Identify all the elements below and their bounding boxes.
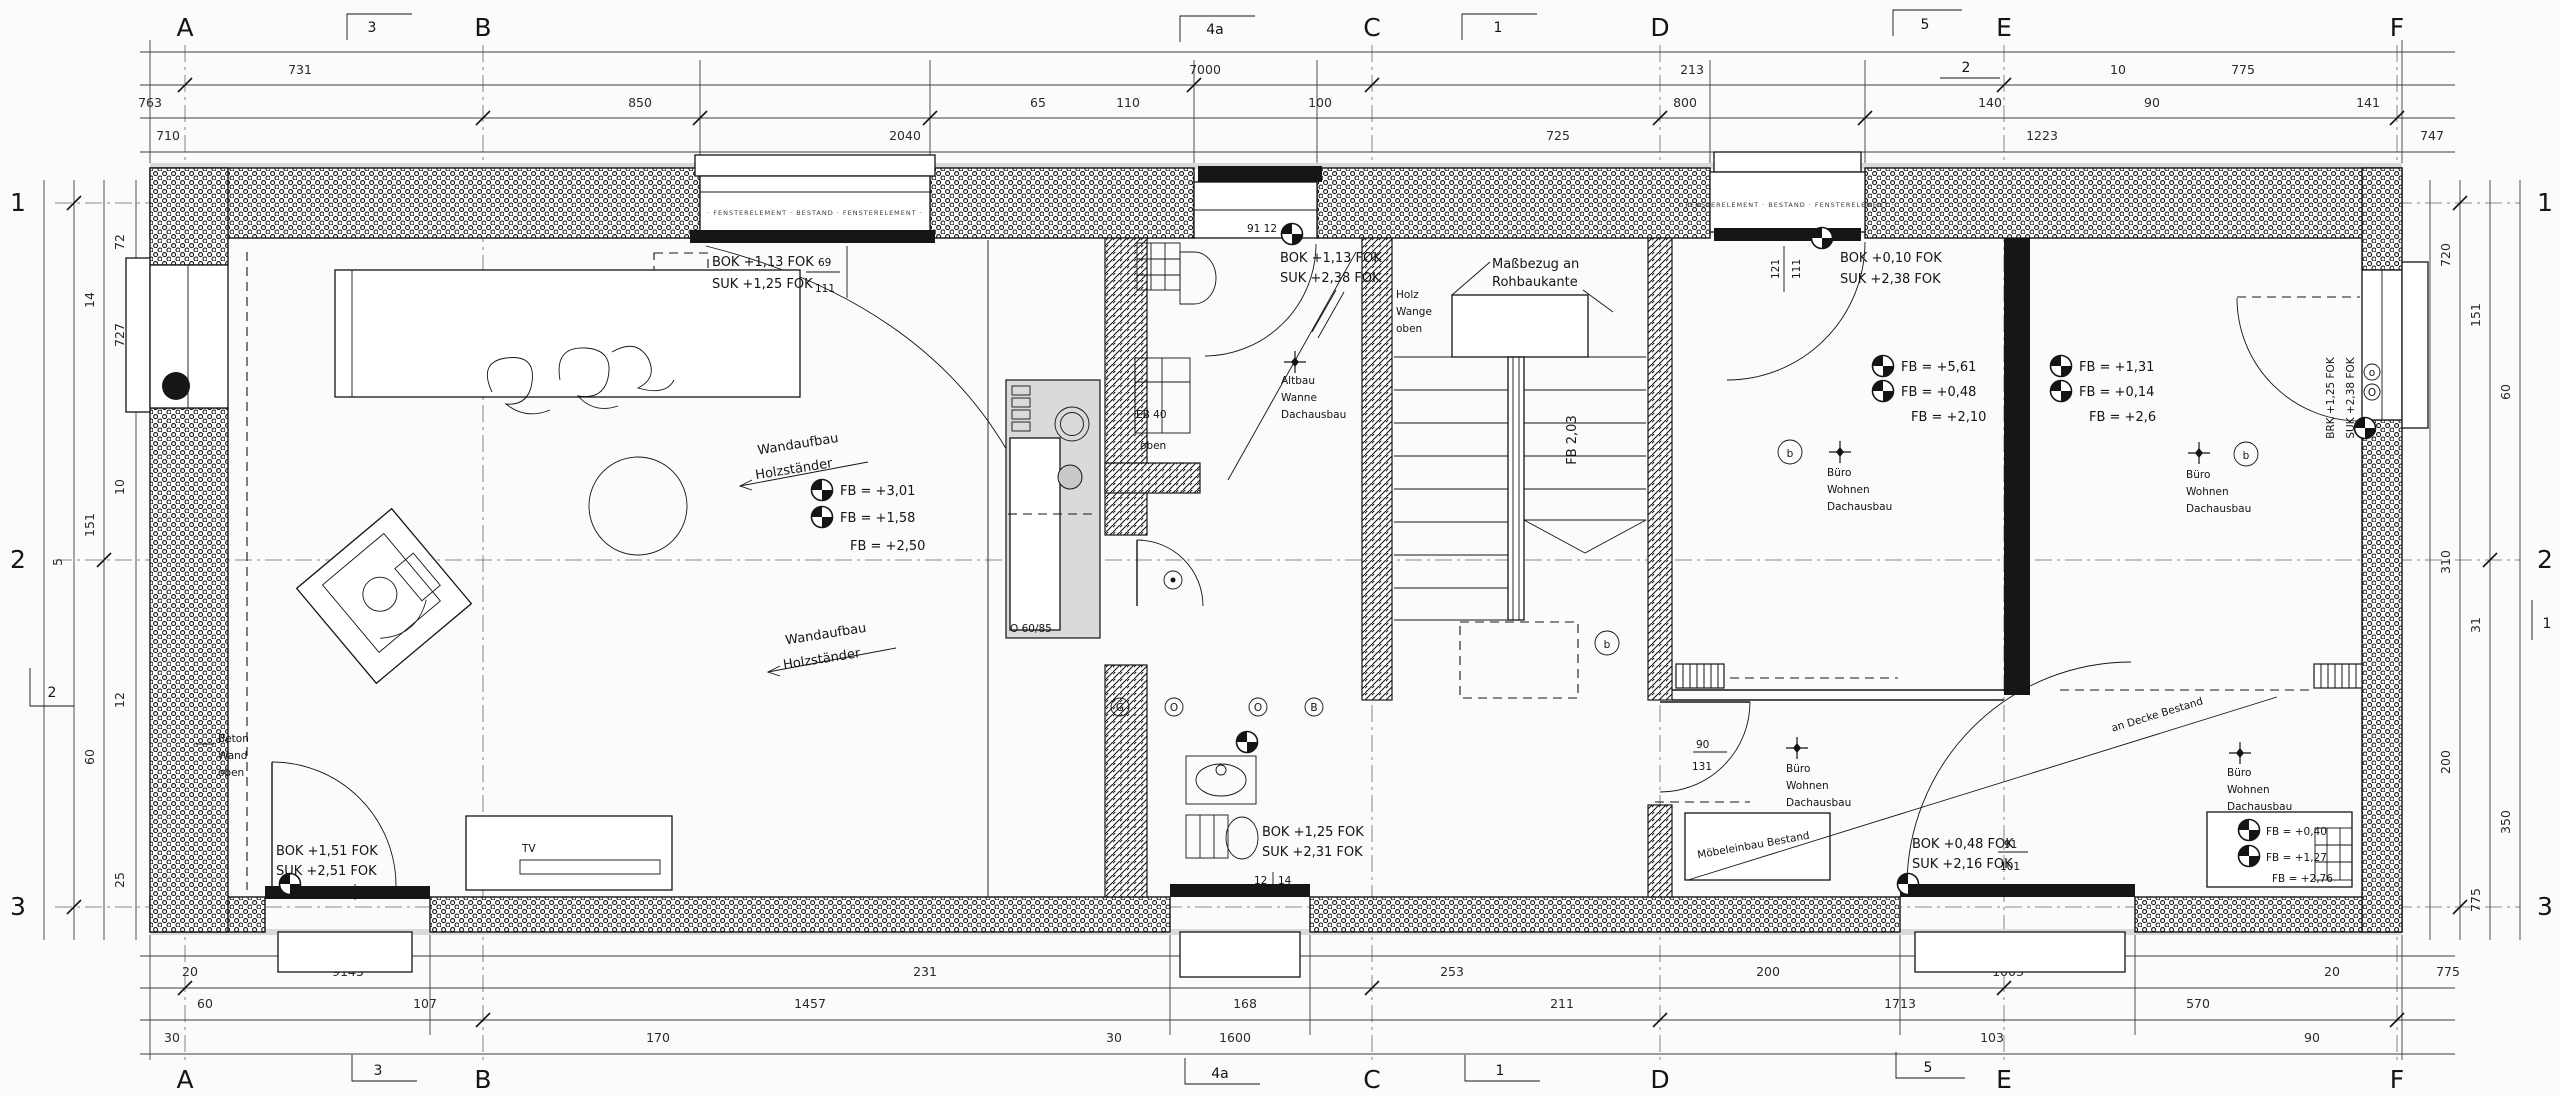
corridor-note: Dachausbau (1786, 797, 1851, 809)
bed2-corner-note: Dachausbau (2227, 801, 2292, 813)
window-elevation-label: SUK +1,25 FOK (712, 277, 813, 292)
section-flag-label: 3 (374, 1063, 383, 1079)
dim-text: 1223 (2026, 128, 2058, 143)
dim-text: 1457 (794, 996, 826, 1011)
ceiling-diagonal (1688, 697, 2277, 880)
grid-label-f-bottom: F (2390, 1065, 2404, 1094)
dim-text: 725 (1546, 128, 1570, 143)
bedroom-2: FB = +1,31 FB = +0,14 FB = +2,6 b Büro W… (2051, 356, 2381, 888)
bath-note: Wanne (1281, 392, 1317, 404)
elevation-marker-icon (812, 480, 833, 501)
dim-text: 140 (1978, 95, 2002, 110)
grid-label-2-left: 2 (10, 545, 26, 574)
bed2-wall-label: BRK +1,25 FOK (2325, 356, 2337, 439)
dim-text: 720 (2438, 243, 2453, 267)
elevation-marker-icon (1873, 356, 1894, 377)
section-flag-label: 4a (1211, 1066, 1229, 1082)
staircase: Maßbezug an Rohbaukante Holz Wange oben … (1394, 257, 1646, 698)
wall-mark: O (2368, 387, 2376, 399)
door-wc (1137, 540, 1203, 606)
dim-text: 727 (112, 323, 127, 347)
bath-elevation-label: SUK +2,38 FOK (1280, 271, 1381, 286)
wc-toilet-icon (1186, 815, 1258, 859)
marker-cross-icon (2229, 742, 2251, 764)
stair-run-label: FB 2,03 (1565, 415, 1580, 464)
section-flag-label-right: 1 (2543, 616, 2552, 632)
elevation-marker-icon (2051, 381, 2072, 402)
dim-text: 850 (628, 95, 652, 110)
dim-text: 168 (1233, 996, 1257, 1011)
wall-right (2362, 168, 2402, 270)
wc-elevation-label: SUK +2,31 FOK (1262, 845, 1363, 860)
door-dim: 12 (336, 887, 349, 899)
elevation-marker-icon (2239, 846, 2260, 867)
bed1-note: Wohnen (1827, 484, 1870, 496)
wc-mark: G (1116, 702, 1124, 714)
dim-text: 31 (2468, 617, 2483, 633)
wall-stair-bed1 (1648, 805, 1672, 897)
dim-text: 231 (913, 964, 937, 979)
wc-mark: O (1170, 702, 1178, 714)
elevation-marker-icon (1237, 732, 1258, 753)
tv-board: TV (466, 816, 672, 890)
tv-label: TV (521, 843, 536, 855)
diagonal-label: an Decke Bestand (2110, 695, 2205, 734)
dim-text: 65 (1030, 95, 1046, 110)
wc-dim: 14 (1278, 875, 1292, 887)
dim-text: 141 (2356, 95, 2380, 110)
grid-label-b-bottom: B (474, 1065, 491, 1094)
wall-bottom (1310, 897, 1900, 932)
terrace-door-label: BOK +0,48 FOK (1912, 837, 2014, 852)
dim-text: 100 (1308, 95, 1332, 110)
dim-text: 151 (2468, 303, 2483, 327)
bed1-window-dim: 121 (1770, 259, 1782, 279)
stair-note: Rohbaukante (1492, 275, 1578, 290)
elevation-marker-icon (2051, 356, 2072, 377)
wall-bath-divider (1105, 463, 1200, 493)
dim-text: 14 (82, 292, 97, 308)
door-bed2 (2237, 297, 2360, 421)
wall-stair-bed1 (1648, 238, 1672, 700)
wc-mark: O (1254, 702, 1262, 714)
wall-mark: o (2369, 367, 2375, 379)
dim-text: 211 (1550, 996, 1574, 1011)
stair-stringer (1508, 357, 1524, 620)
wall-left (150, 168, 228, 265)
fb-level-label: FB = +0,14 (2079, 385, 2154, 400)
bathroom: BOK +1,13 FOK SUK +2,38 FOK Altbau Wanne… (1111, 224, 1382, 889)
bed1-window-dim: 111 (1791, 259, 1803, 279)
kitchen: O 60/85 (1006, 380, 1100, 638)
note-beton: Beton (218, 733, 249, 745)
marker-cross-icon (1284, 351, 1306, 373)
fb-level-label: FB = +2,10 (1911, 410, 1986, 425)
floor-plan-drawing: 731 7000 213 10 775 763 850 65 110 100 8… (0, 0, 2560, 1095)
dim-text-overall-top: 7000 (1189, 62, 1221, 77)
basin-label: oben (1140, 440, 1166, 452)
radiator-icon (2314, 664, 2362, 688)
grid-label-d-top: D (1650, 13, 1669, 42)
fb-level-label: FB = +2,50 (850, 539, 925, 554)
bed1-note: Dachausbau (1827, 501, 1892, 513)
section-flag-label: 2 (1962, 60, 1971, 76)
dim-text-overall-bottom: 1600 (1219, 1030, 1251, 1045)
terrace-door-label: SUK +2,16 FOK (1912, 857, 2013, 872)
dim-text: 72 (112, 234, 127, 250)
elevation-marker-icon (1898, 874, 1919, 895)
dim-text: 30 (164, 1030, 180, 1045)
dim-text: 12 (112, 692, 127, 708)
dim-text: 103 (1980, 1030, 2004, 1045)
basin-label: EB 40 (1136, 409, 1167, 421)
window-elevation-label: BOK +1,13 FOK (712, 255, 814, 270)
bedroom-1: BOK +0,10 FOK SUK +2,38 FOK 121 111 FB =… (1770, 228, 1986, 514)
door-dim: 101 (2000, 861, 2020, 873)
fb-level-label: FB = +2,6 (2089, 410, 2156, 425)
dim-text: 25 (112, 872, 127, 888)
dim-text: 763 (138, 95, 162, 110)
bath-note: Altbau (1281, 375, 1315, 387)
stair-side-note: Wange (1396, 306, 1432, 318)
dim-text: 60 (82, 749, 97, 765)
grid-label-2-right: 2 (2537, 545, 2553, 574)
grid-label-3-left: 3 (10, 892, 26, 921)
stair-side-note: Holz (1396, 289, 1419, 301)
bed1-note: Büro (1827, 467, 1851, 479)
dim-text: 570 (2186, 996, 2210, 1011)
door-dim: 91 (2004, 839, 2017, 851)
marker-cross-icon (1786, 737, 1808, 759)
wall-right (2362, 420, 2402, 932)
fb-level-label: FB = +0,48 (1901, 385, 1976, 400)
counter-label: O 60/85 (1010, 623, 1052, 635)
window-band-text: · FENSTERELEMENT · BESTAND · FENSTERELEM… (707, 209, 923, 217)
grid-label-d-bottom: D (1650, 1065, 1669, 1094)
note-wall-buildup: Wandaufbau (784, 621, 867, 649)
dim-text: 253 (1440, 964, 1464, 979)
window-dim: 91 12 (1247, 223, 1277, 235)
bed1-window-label: SUK +2,38 FOK (1840, 272, 1941, 287)
grid-label-e-top: E (1996, 13, 2012, 42)
cooktop-icon (1058, 465, 1082, 489)
section-flag-label: 5 (1921, 17, 1930, 33)
dim-text: 10 (112, 479, 127, 495)
dim-text: 731 (288, 62, 312, 77)
dim-text: 350 (2498, 810, 2513, 834)
door-elevation-label: BOK +1,51 FOK (276, 844, 378, 859)
bed2-note: Wohnen (2186, 486, 2229, 498)
dim-text: 5 (50, 558, 65, 566)
room-mark: b (2243, 450, 2250, 462)
elevation-marker-icon (812, 507, 833, 528)
window-bath-top: 91 12 (1194, 166, 1322, 238)
bed1-window-label: BOK +0,10 FOK (1840, 251, 1942, 266)
section-flag-label: 1 (1496, 1063, 1505, 1079)
bed2-note: Dachausbau (2186, 503, 2251, 515)
bed2-corner-note: Büro (2227, 767, 2251, 779)
elevation-marker-icon (2239, 820, 2260, 841)
grid-label-c-bottom: C (1363, 1065, 1380, 1094)
stair-treads-left (1394, 357, 1508, 620)
section-flag-label: 1 (1494, 20, 1503, 36)
corridor-note: Wohnen (1786, 780, 1829, 792)
note-wall-buildup: Wandaufbau (756, 431, 839, 459)
stair-landing (1452, 295, 1588, 357)
dim-text: 775 (2231, 62, 2255, 77)
section-flag-label: 3 (368, 20, 377, 36)
fb-level-label: FB = +2,76 (2272, 873, 2333, 885)
corridor: 90 131 Büro Wohnen Dachausbau Möbeleinba… (1655, 664, 2277, 895)
dim-text: 170 (646, 1030, 670, 1045)
dim-text: 60 (2498, 384, 2513, 400)
dim-text: 200 (2438, 750, 2453, 774)
bed2-note: Büro (2186, 469, 2210, 481)
grid-label-1-left: 1 (10, 188, 26, 217)
room-mark: b (1787, 448, 1794, 460)
stair-direction-arrow (1524, 520, 1646, 553)
dim-text: 747 (2420, 128, 2444, 143)
wall-left (150, 408, 228, 932)
window-band-text: · FENSTERELEMENT · BESTAND · FENSTERELEM… (1679, 201, 1895, 209)
dim-text: 60 (197, 996, 213, 1011)
grid-label-f-top: F (2390, 13, 2404, 42)
grid-label-e-bottom: E (1996, 1065, 2012, 1094)
bed2-corner-note: Wohnen (2227, 784, 2270, 796)
dim-text: 775 (2436, 964, 2460, 979)
living-room: TV Beton Wand oben BOK +1,13 FOK SUK +1,… (196, 240, 988, 900)
elevation-marker-icon (1812, 228, 1833, 249)
elevation-marker-icon (1873, 381, 1894, 402)
wall-top (150, 168, 700, 238)
stair-understorage (1460, 622, 1578, 698)
elevation-marker-icon (2355, 418, 2376, 439)
section-flag-label: 4a (1206, 22, 1224, 38)
note-beton: oben (218, 767, 244, 779)
grid-label-3-right: 3 (2537, 892, 2553, 921)
dim-text: 10 (2110, 62, 2126, 77)
marker-cross-icon (2188, 442, 2210, 464)
wc-basin-icon (1186, 756, 1256, 804)
door-dim: 131 (1692, 761, 1712, 773)
dim-text: 107 (413, 996, 437, 1011)
marker-cross-icon (1829, 441, 1851, 463)
dim-text: 800 (1673, 95, 1697, 110)
note-wall-buildup: Holzständer (782, 646, 862, 673)
round-table (589, 457, 687, 555)
bath-elevation-label: BOK +1,13 FOK (1280, 251, 1382, 266)
window-living-top: · FENSTERELEMENT · BESTAND · FENSTERELEM… (690, 155, 935, 243)
grid-label-c-top: C (1363, 13, 1380, 42)
dim-text: 310 (2438, 550, 2453, 574)
dim-text: 110 (1116, 95, 1140, 110)
note-beton: Wand (218, 750, 247, 762)
wall-bottom (430, 897, 1170, 932)
fb-level-label: FB = +1,31 (2079, 360, 2154, 375)
dim-text: 213 (1680, 62, 1704, 77)
section-flag-label-left: 2 (48, 685, 57, 701)
dim-text: 20 (2324, 964, 2340, 979)
corridor-note: Büro (1786, 763, 1810, 775)
window-dim: 111 (815, 283, 835, 295)
dim-text: 20 (182, 964, 198, 979)
dim-text: 90 (2304, 1030, 2320, 1045)
elevation-marker-icon (1282, 224, 1303, 245)
wall-bath-stair (1362, 238, 1392, 700)
dim-text: 775 (2468, 888, 2483, 912)
wc-dim: 12 (1254, 875, 1267, 887)
grid-label-1-right: 1 (2537, 188, 2553, 217)
dim-text: 30 (1106, 1030, 1122, 1045)
door-dim: 90 (1696, 739, 1709, 751)
wall-top (1865, 168, 2402, 238)
stair-side-note: oben (1396, 323, 1422, 335)
fb-level-label: FB = +5,61 (1901, 360, 1976, 375)
door-dim: 14 (360, 887, 374, 899)
window-dim: 69 (818, 257, 831, 269)
grid-label-a-bottom: A (176, 1065, 193, 1094)
dim-text: 90 (2144, 95, 2160, 110)
window-living-left (126, 258, 228, 412)
fb-level-label: FB = +1,58 (840, 511, 915, 526)
dim-text: 2040 (889, 128, 921, 143)
dim-text: 151 (82, 513, 97, 537)
wall-partition-e (2004, 238, 2030, 695)
stove-column-icon (162, 372, 190, 400)
wc-mark: B (1310, 702, 1317, 714)
radiator-icon (1676, 664, 1724, 688)
toilet-icon (1137, 243, 1216, 304)
dim-text: 1713 (1884, 996, 1916, 1011)
closet-bed2: FB = +0,40 FB = +1,27 FB = +2,76 (2207, 812, 2352, 887)
wall-top (930, 168, 1194, 238)
fb-level-label: FB = +3,01 (840, 484, 915, 499)
door-elevation-label: SUK +2,51 FOK (276, 864, 377, 879)
wall-top (1317, 168, 1710, 238)
dim-text: 710 (156, 128, 180, 143)
stair-note: Maßbezug an (1492, 257, 1579, 272)
stair-treads-right (1524, 357, 1646, 520)
stair-mark: b (1604, 639, 1611, 651)
grid-label-a-top: A (176, 13, 193, 42)
bath-note: Dachausbau (1281, 409, 1346, 421)
floor-plan-canvas: 731 7000 213 10 775 763 850 65 110 100 8… (0, 0, 2560, 1095)
armchair (297, 509, 472, 684)
dim-text: 200 (1756, 964, 1780, 979)
section-flag-label: 5 (1924, 1060, 1933, 1076)
wc-elevation-label: BOK +1,25 FOK (1262, 825, 1364, 840)
window-bed2-right (2362, 262, 2428, 428)
grid-label-b-top: B (474, 13, 491, 42)
